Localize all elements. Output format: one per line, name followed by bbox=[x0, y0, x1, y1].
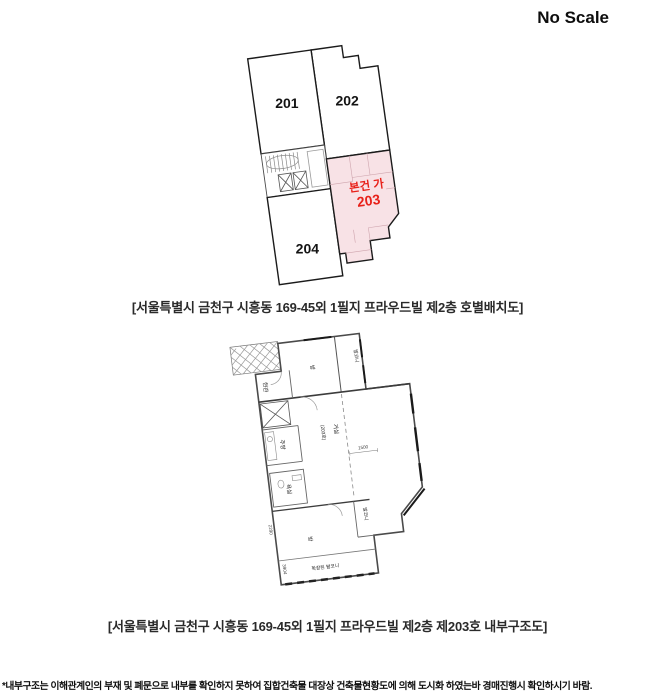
unit-202-number: 202 bbox=[335, 93, 359, 109]
unit-204-number: 204 bbox=[296, 240, 320, 256]
unit-layout-caption: [서울특별시 금천구 시흥동 169-45외 1필지 프라우드빌 제2층 호별배… bbox=[0, 297, 655, 316]
dim-2290: 2290 bbox=[268, 524, 274, 535]
stair-hall-hatch bbox=[230, 341, 281, 375]
footnote: *내부구조는 이해관계인의 부재 및 폐문으로 내부를 확인하지 못하여 집합건… bbox=[2, 678, 655, 692]
document-page: { "page": { "scale_note": "No Scale", "f… bbox=[0, 0, 655, 700]
unit-201-number: 201 bbox=[275, 95, 299, 111]
no-scale-label: No Scale bbox=[537, 8, 609, 28]
interior-floor-plan: 방 발코니 현관 주방 욕실 거실 (203호) 방 발코니 확장된 발코니 1… bbox=[223, 326, 438, 609]
interior-layout-caption: [서울특별시 금천구 시흥동 169-45외 1필지 프라우드빌 제2층 제20… bbox=[0, 616, 655, 635]
building-floor-plan: 201 202 204 본건 가 203 bbox=[232, 38, 407, 295]
unit-outline bbox=[252, 328, 432, 585]
unit-204-outline bbox=[267, 189, 343, 285]
subject-unit-number: 203 bbox=[356, 191, 382, 210]
interior-floor-plan-svg: 방 발코니 현관 주방 욕실 거실 (203호) 방 발코니 확장된 발코니 1… bbox=[223, 326, 438, 604]
building-floor-plan-svg: 201 202 204 본건 가 203 bbox=[232, 38, 407, 290]
